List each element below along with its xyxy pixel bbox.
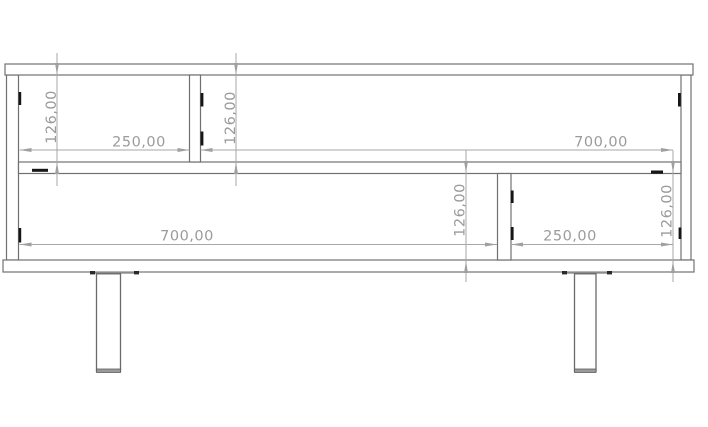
right-side-panel	[681, 75, 691, 260]
dim-label: 126,00	[660, 184, 676, 238]
tick-right-panel-lower	[679, 228, 682, 240]
left-side-panel	[7, 75, 19, 260]
tick-lower-divider-bottom	[511, 227, 514, 240]
right-plate-cap-a	[562, 271, 567, 274]
dim-label: 700,00	[160, 229, 214, 245]
tick-shelf-right	[651, 171, 663, 174]
right-plate-cap-b	[607, 271, 612, 274]
top-panel	[5, 64, 693, 75]
lower-divider	[498, 174, 512, 261]
upper-divider	[190, 75, 201, 162]
cabinet-dimension-drawing: 126,00 126,00 126,00 126,00	[0, 0, 708, 427]
dim-label: 126,00	[223, 91, 239, 145]
middle-shelf	[19, 162, 682, 174]
tick-right-panel-upper	[678, 93, 681, 107]
left-plate-cap-a	[90, 271, 95, 274]
left-leg	[97, 274, 121, 372]
dim-lower-left-width: 700,00	[20, 229, 498, 247]
dim-lower-right-width: 250,00	[511, 229, 673, 247]
tick-lower-divider-top	[511, 191, 514, 204]
dim-arrowhead	[201, 148, 213, 152]
dim-arrowhead	[178, 148, 190, 152]
tick-shelf-left	[32, 169, 48, 172]
bottom-panel	[3, 260, 694, 272]
dim-arrowhead	[511, 243, 523, 247]
technical-drawing-canvas: 126,00 126,00 126,00 126,00	[0, 0, 708, 427]
left-leg-assembly	[90, 271, 139, 373]
dim-label: 250,00	[112, 135, 166, 151]
left-leg-foot	[97, 369, 121, 373]
legs	[90, 271, 612, 373]
dim-arrowhead	[661, 148, 673, 152]
dim-label: 700,00	[574, 135, 628, 151]
dim-arrowhead	[485, 243, 497, 247]
tick-left-panel-lower	[19, 228, 22, 243]
dim-arrowhead	[20, 148, 32, 152]
right-leg-foot	[575, 369, 597, 373]
dim-label: 250,00	[543, 229, 597, 245]
dim-label: 126,00	[453, 183, 469, 237]
tick-left-panel-upper	[19, 92, 22, 105]
dim-arrowhead	[661, 243, 673, 247]
tick-upper-divider-top	[201, 93, 204, 107]
right-leg-assembly	[562, 271, 612, 373]
tick-upper-divider-bottom	[201, 132, 204, 146]
dim-upper-right-width: 700,00	[201, 135, 674, 153]
dim-label: 126,00	[44, 90, 60, 144]
dim-arrowhead	[20, 243, 32, 247]
left-plate-cap-b	[134, 271, 139, 274]
right-leg	[575, 274, 597, 372]
